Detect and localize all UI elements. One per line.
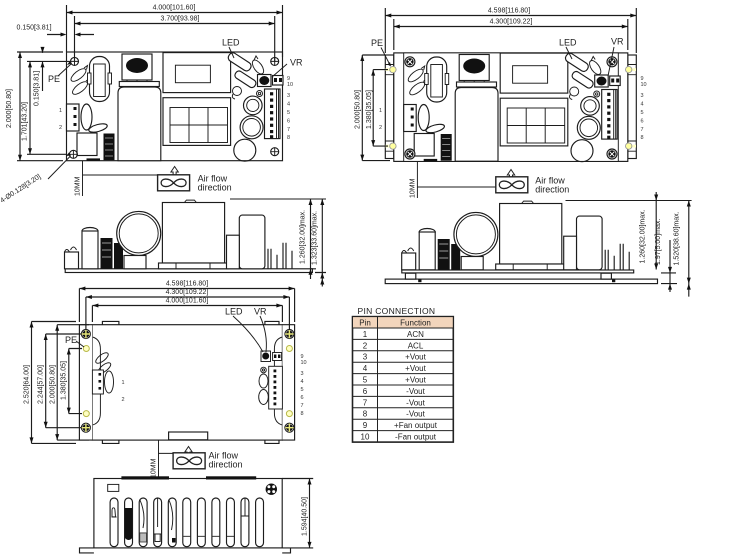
svg-text:5: 5 bbox=[641, 110, 644, 116]
svg-text:6: 6 bbox=[363, 387, 368, 396]
svg-text:7: 7 bbox=[363, 398, 368, 407]
svg-text:1: 1 bbox=[59, 108, 62, 114]
svg-text:-Fan output: -Fan output bbox=[395, 433, 437, 442]
svg-text:3.700[93.98]: 3.700[93.98] bbox=[161, 16, 200, 23]
svg-text:10MM: 10MM bbox=[410, 178, 417, 198]
svg-text:LED: LED bbox=[225, 307, 243, 317]
svg-text:1: 1 bbox=[122, 380, 125, 386]
svg-text:4: 4 bbox=[641, 102, 644, 108]
svg-text:PE: PE bbox=[65, 335, 77, 345]
svg-text:6: 6 bbox=[301, 395, 304, 401]
svg-text:direction: direction bbox=[209, 460, 243, 470]
svg-text:2.520[64.00]: 2.520[64.00] bbox=[24, 365, 31, 404]
svg-text:VR: VR bbox=[611, 37, 624, 47]
svg-text:7: 7 bbox=[641, 127, 644, 133]
svg-text:PIN CONNECTION: PIN CONNECTION bbox=[358, 306, 436, 316]
svg-text:4.598[116.80]: 4.598[116.80] bbox=[166, 281, 208, 288]
svg-text:LED: LED bbox=[222, 38, 240, 48]
svg-text:10: 10 bbox=[641, 82, 647, 88]
svg-text:4: 4 bbox=[363, 364, 368, 373]
svg-text:1.97[5.00]max.: 1.97[5.00]max. bbox=[655, 219, 662, 265]
svg-text:10: 10 bbox=[287, 82, 293, 88]
svg-text:9: 9 bbox=[363, 421, 368, 430]
svg-text:1.701[43.20]: 1.701[43.20] bbox=[22, 102, 29, 141]
svg-text:2.000[50.80]: 2.000[50.80] bbox=[6, 89, 13, 128]
svg-text:4: 4 bbox=[287, 102, 290, 108]
svg-text:1.260[32.00]max.: 1.260[32.00]max. bbox=[640, 209, 647, 263]
svg-text:3: 3 bbox=[301, 371, 304, 377]
svg-text:10MM: 10MM bbox=[151, 458, 158, 478]
svg-text:0.150[3.81]: 0.150[3.81] bbox=[34, 71, 41, 106]
svg-text:6: 6 bbox=[287, 119, 290, 125]
svg-text:-Vout: -Vout bbox=[406, 398, 425, 407]
svg-text:-Vout: -Vout bbox=[406, 387, 425, 396]
svg-text:1.260[32.00]max.: 1.260[32.00]max. bbox=[300, 210, 307, 264]
svg-text:4.000[101.60]: 4.000[101.60] bbox=[166, 298, 209, 305]
svg-text:8: 8 bbox=[301, 411, 304, 417]
svg-text:Pin: Pin bbox=[359, 319, 371, 328]
svg-text:6: 6 bbox=[641, 119, 644, 125]
svg-text:5: 5 bbox=[301, 387, 304, 393]
svg-text:+Vout: +Vout bbox=[405, 353, 426, 362]
svg-text:10: 10 bbox=[361, 433, 370, 442]
svg-text:VR: VR bbox=[254, 307, 267, 317]
svg-text:-Vout: -Vout bbox=[406, 410, 425, 419]
svg-text:2: 2 bbox=[122, 397, 125, 403]
svg-text:3: 3 bbox=[641, 93, 644, 99]
svg-text:7: 7 bbox=[287, 127, 290, 133]
svg-text:4: 4 bbox=[301, 379, 304, 385]
svg-text:ACL: ACL bbox=[408, 341, 424, 350]
svg-text:LED: LED bbox=[559, 38, 577, 48]
svg-text:1.520[38.60]max.: 1.520[38.60]max. bbox=[674, 211, 681, 265]
svg-text:+Vout: +Vout bbox=[405, 376, 426, 385]
svg-text:4.300[109.22]: 4.300[109.22] bbox=[490, 19, 533, 26]
svg-text:PE: PE bbox=[371, 38, 383, 48]
svg-text:8: 8 bbox=[363, 410, 368, 419]
svg-text:0.150[3.81]: 0.150[3.81] bbox=[16, 25, 51, 32]
svg-text:2.000[50.80]: 2.000[50.80] bbox=[50, 365, 57, 404]
svg-text:ACN: ACN bbox=[407, 330, 424, 339]
svg-text:1: 1 bbox=[379, 108, 382, 114]
svg-text:4.300[109.22]: 4.300[109.22] bbox=[166, 289, 209, 296]
svg-text:1.380[35.05]: 1.380[35.05] bbox=[366, 90, 373, 129]
svg-text:4.000[101.60]: 4.000[101.60] bbox=[153, 5, 196, 12]
svg-text:2: 2 bbox=[59, 125, 62, 131]
svg-text:direction: direction bbox=[198, 183, 232, 193]
svg-text:10MM: 10MM bbox=[75, 176, 82, 196]
svg-text:1.594[40.50]: 1.594[40.50] bbox=[302, 497, 309, 536]
svg-text:1.323[33.60]max.: 1.323[33.60]max. bbox=[312, 211, 319, 265]
svg-text:7: 7 bbox=[301, 403, 304, 409]
svg-text:4.598[116.80]: 4.598[116.80] bbox=[488, 8, 530, 15]
svg-text:1: 1 bbox=[363, 330, 368, 339]
svg-text:VR: VR bbox=[290, 58, 303, 68]
svg-text:5: 5 bbox=[287, 110, 290, 116]
svg-text:2.000[50.80]: 2.000[50.80] bbox=[355, 90, 362, 129]
svg-text:3: 3 bbox=[363, 353, 368, 362]
svg-text:+Vout: +Vout bbox=[405, 364, 426, 373]
svg-text:Function: Function bbox=[400, 319, 431, 328]
svg-text:2: 2 bbox=[363, 341, 368, 350]
svg-text:1.380[35.05]: 1.380[35.05] bbox=[61, 361, 68, 400]
svg-text:8: 8 bbox=[287, 135, 290, 141]
svg-text:direction: direction bbox=[535, 185, 569, 195]
svg-text:8: 8 bbox=[641, 135, 644, 141]
svg-text:3: 3 bbox=[287, 93, 290, 99]
svg-text:5: 5 bbox=[363, 376, 368, 385]
svg-text:10: 10 bbox=[301, 360, 307, 366]
svg-text:+Fan output: +Fan output bbox=[394, 421, 438, 430]
svg-text:2.244[57.00]: 2.244[57.00] bbox=[38, 365, 45, 404]
svg-text:2: 2 bbox=[379, 125, 382, 131]
